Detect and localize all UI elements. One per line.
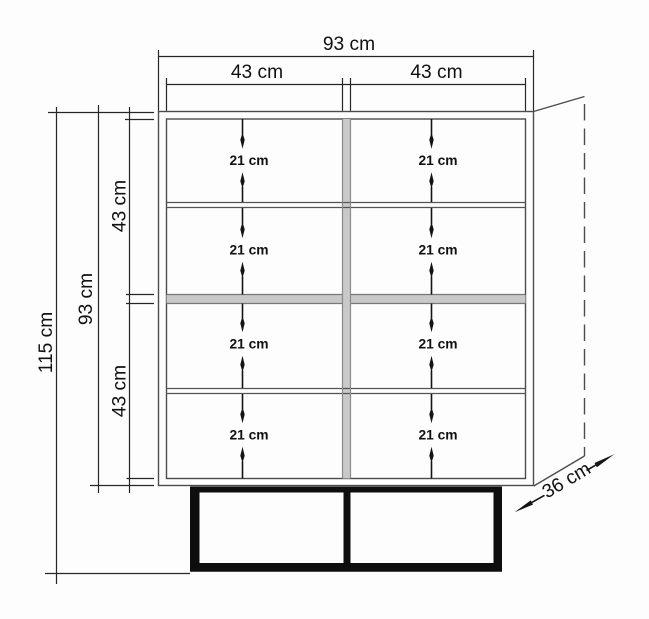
svg-text:21 cm: 21 cm [418, 428, 457, 443]
svg-text:21 cm: 21 cm [418, 243, 457, 258]
svg-text:21 cm: 21 cm [418, 337, 457, 352]
svg-text:93 cm: 93 cm [76, 273, 97, 325]
svg-text:21 cm: 21 cm [229, 153, 268, 168]
svg-text:21 cm: 21 cm [229, 243, 268, 258]
svg-text:21 cm: 21 cm [229, 337, 268, 352]
svg-text:43 cm: 43 cm [410, 62, 462, 83]
svg-text:43 cm: 43 cm [110, 180, 131, 232]
svg-text:93 cm: 93 cm [323, 34, 375, 55]
svg-text:21 cm: 21 cm [229, 428, 268, 443]
svg-text:21 cm: 21 cm [418, 153, 457, 168]
svg-text:115 cm: 115 cm [36, 312, 57, 374]
svg-text:43 cm: 43 cm [110, 365, 131, 417]
svg-text:43 cm: 43 cm [231, 62, 283, 83]
